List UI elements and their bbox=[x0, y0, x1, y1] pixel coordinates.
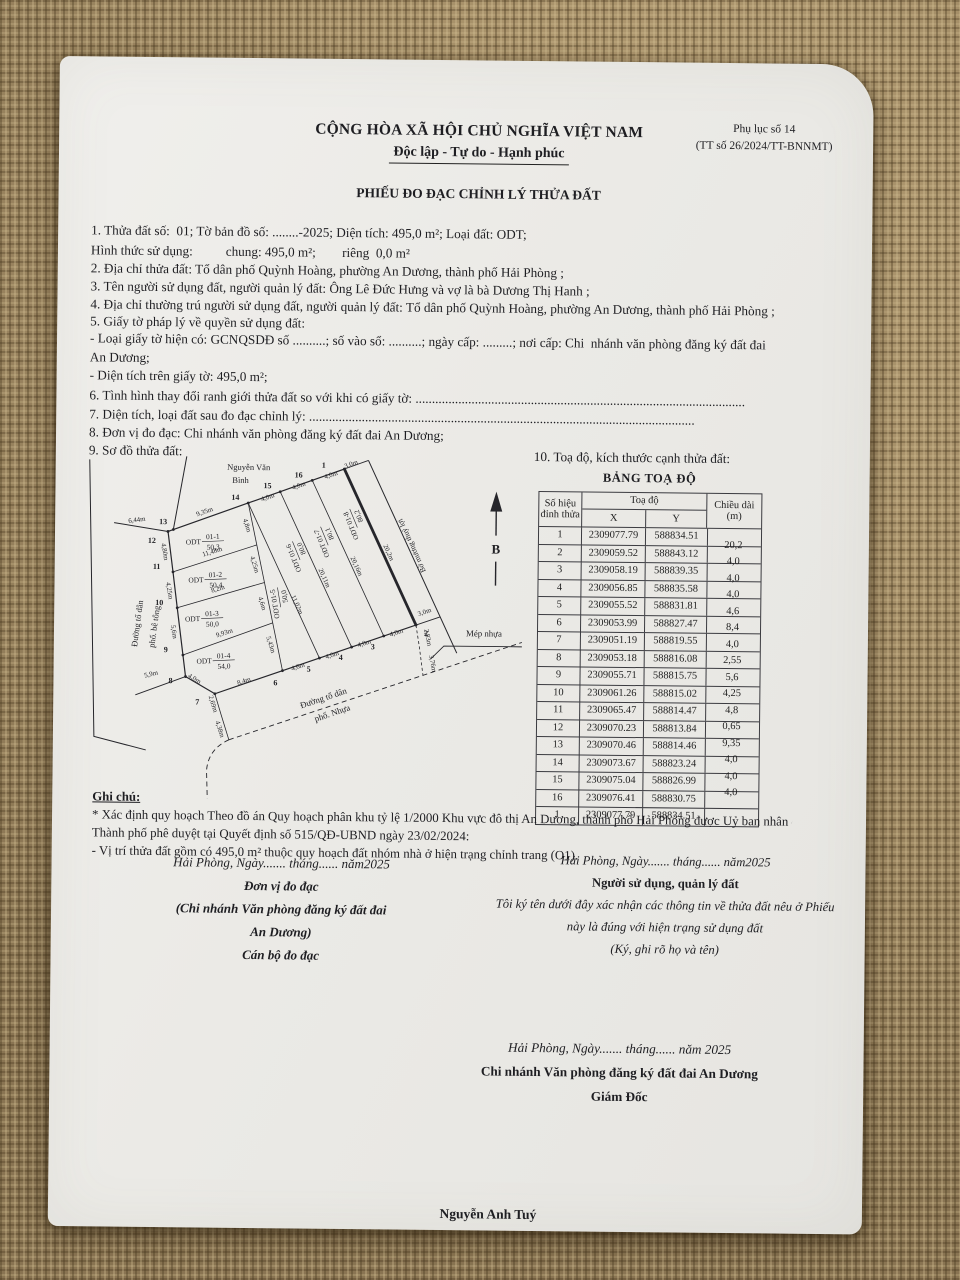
table-cell: 8 bbox=[538, 650, 581, 667]
length-value: 4,25 bbox=[704, 688, 759, 701]
sign-left-person: Cán bộ đo đạc bbox=[90, 941, 470, 968]
table-cell: 15 bbox=[536, 772, 579, 789]
table-title: BẢNG TOẠ ĐỘ bbox=[539, 470, 761, 487]
parcel-text: ODT bbox=[196, 656, 212, 666]
edge-length-label: 3,76m bbox=[427, 655, 437, 674]
edge-length-label: 8,4m bbox=[236, 676, 252, 687]
parcel-text: 01-4 bbox=[217, 651, 231, 661]
table-cell: 588835.58 bbox=[645, 581, 707, 598]
length-value: 4,0 bbox=[704, 754, 759, 767]
vertex-label: 6 bbox=[273, 678, 277, 687]
table-body: 12309077.79588834.5122309059.52588843.12… bbox=[536, 527, 761, 826]
table-cell: 2309073.67 bbox=[580, 755, 644, 772]
parcel-text: ODT bbox=[188, 575, 204, 585]
vertex-label: 14 bbox=[231, 493, 239, 502]
edge-length-label: 4,6m bbox=[290, 661, 306, 672]
table-cell: 588815.02 bbox=[644, 686, 706, 703]
vertex-point bbox=[279, 490, 282, 493]
parcel-text: 01-2 bbox=[208, 570, 222, 580]
table-cell: 588814.46 bbox=[644, 738, 706, 755]
vertex-point bbox=[247, 502, 250, 505]
parcel-label: ODT01-150,3 bbox=[185, 532, 224, 553]
item-10: 10. Toạ độ, kích thước cạnh thửa đất: bbox=[534, 449, 730, 467]
edge-length-label: 4,0m bbox=[389, 627, 405, 638]
vertex-label: 11 bbox=[153, 562, 161, 571]
table-cell: 2 bbox=[539, 545, 582, 562]
length-column: 20,24,04,04,04,68,44,02,555,64,254,80,65… bbox=[703, 529, 761, 826]
edge-length-label: 11,02m bbox=[289, 594, 304, 616]
parcel-sketch: 123456789101112131415169,35m4,0m4,0m4,0m… bbox=[80, 451, 524, 804]
approval-block: Hải Phòng, Ngày....... tháng...... năm 2… bbox=[299, 1034, 940, 1113]
signer-name: Nguyễn Anh Tuý bbox=[168, 1203, 808, 1226]
vertex-label: 8 bbox=[168, 676, 172, 685]
map-text: Mép nhựa bbox=[466, 628, 502, 638]
table-cell: 10 bbox=[537, 685, 580, 702]
table-cell: 588819.55 bbox=[645, 633, 707, 650]
length-value: 4,0 bbox=[705, 638, 760, 651]
vertex-label: 13 bbox=[159, 517, 167, 526]
table-cell: 12 bbox=[537, 720, 580, 737]
strip-parcel-label: ODT 01-880,2 bbox=[341, 505, 370, 541]
vertex-point bbox=[382, 635, 385, 638]
table-cell: 1 bbox=[539, 527, 582, 544]
length-value: 8,4 bbox=[705, 622, 760, 635]
strip-parcel-label: ODT 01-680,0 bbox=[284, 538, 313, 574]
table-cell: 2309056.85 bbox=[581, 580, 645, 597]
length-value: 9,35 bbox=[704, 737, 759, 750]
map-text: Đường tổ dân bbox=[129, 599, 145, 648]
col-vertex-2: đỉnh thửa bbox=[539, 509, 581, 521]
appendix-ref: Phụ lục số 14 (TT số 26/2024/TT-BNNMT) bbox=[655, 120, 873, 156]
document-paper: CỘNG HÒA XÃ HỘI CHỦ NGHĨA VIỆT NAM Độc l… bbox=[48, 56, 874, 1234]
table-cell: 588823.24 bbox=[644, 756, 706, 773]
vertex-label: 16 bbox=[295, 470, 303, 479]
vertex-point bbox=[172, 570, 175, 573]
motto: Độc lập - Tự do - Hạnh phúc bbox=[389, 142, 568, 165]
sign-block-surveyor: Hải Phòng, Ngày....... tháng...... năm20… bbox=[90, 849, 471, 968]
edge-length-label: 2,69m bbox=[207, 695, 219, 714]
parcel-text: 50,3 bbox=[207, 542, 221, 552]
table-cell: 2309055.52 bbox=[581, 597, 645, 614]
length-value: 4,0 bbox=[703, 770, 758, 783]
vertex-point bbox=[318, 657, 321, 660]
edge-length-label: 3,0m bbox=[344, 459, 360, 470]
col-coord: Toạ độ bbox=[582, 492, 706, 510]
vertex-point bbox=[350, 646, 353, 649]
table-cell: 6 bbox=[538, 615, 581, 632]
length-value: 2,55 bbox=[705, 655, 760, 668]
coordinate-table: Số hiệu đỉnh thửa Toạ độ X Y Chiều dài (… bbox=[535, 491, 762, 827]
map-text: Nguyễn Văn bbox=[227, 462, 271, 472]
parcel-text: 01-1 bbox=[206, 532, 220, 542]
edge-length-label: 5,9m bbox=[144, 669, 160, 679]
sign-right-sign: (Ký, ghi rõ họ và tên) bbox=[487, 937, 843, 963]
edge-length-label: 3,0m bbox=[417, 607, 433, 618]
parcel-text: 50,0 bbox=[206, 619, 220, 629]
edge-length-label: 4,8m bbox=[241, 518, 252, 534]
edge-length-label: 4,25m bbox=[164, 582, 174, 601]
edge-length-label: 6,44m bbox=[128, 516, 147, 525]
table-cell: 3 bbox=[539, 562, 582, 579]
table-cell: 2309058.19 bbox=[582, 562, 646, 579]
length-value: 20,2 bbox=[706, 539, 761, 552]
table-cell: 2309051.19 bbox=[581, 632, 645, 649]
map-text: phố. bê tông bbox=[146, 604, 162, 648]
table-cell: 13 bbox=[537, 737, 580, 754]
sign-right-note1: Tôi ký tên dưới đây xác nhận các thông t… bbox=[487, 893, 843, 919]
table-cell: 588843.12 bbox=[646, 546, 708, 563]
parcel-text: 54,0 bbox=[217, 661, 231, 671]
length-value: 4,0 bbox=[705, 589, 760, 602]
table-cell: 4 bbox=[538, 580, 581, 597]
col-x: X bbox=[582, 509, 646, 527]
sign-block-user: Hải Phòng, Ngày....... tháng...... năm20… bbox=[487, 849, 844, 963]
edge-length-label: 5,6m bbox=[169, 625, 178, 640]
edge-length-label: 20,16m bbox=[349, 556, 364, 578]
table-cell: 588826.99 bbox=[643, 773, 705, 790]
strip-parcel-label: ODT 01-780,1 bbox=[312, 523, 341, 559]
vertex-label: 5 bbox=[307, 665, 311, 674]
vertex-label: 4 bbox=[339, 653, 343, 662]
vertex-label: 7 bbox=[195, 697, 199, 706]
vertex-label: 1 bbox=[322, 461, 326, 470]
map-text: phố. Nhựa bbox=[313, 702, 351, 723]
table-cell: 588839.35 bbox=[646, 563, 708, 580]
parcel-text: 01-3 bbox=[205, 609, 219, 619]
edge-length-label: 4,0m bbox=[291, 480, 307, 491]
edge-length-label: 4,80m bbox=[159, 543, 169, 562]
table-cell: 588827.47 bbox=[645, 616, 707, 633]
table-cell: 2309070.23 bbox=[580, 720, 644, 737]
vertex-label: 9 bbox=[164, 645, 168, 654]
length-value: 4,8 bbox=[704, 704, 759, 717]
table-header: Số hiệu đỉnh thửa Toạ độ X Y Chiều dài (… bbox=[539, 492, 761, 529]
table-cell: 14 bbox=[537, 755, 580, 772]
length-value: 4,0 bbox=[706, 556, 761, 569]
col-y: Y bbox=[646, 510, 706, 528]
length-value: 4,0 bbox=[706, 572, 761, 585]
edge-length-label: 4,25m bbox=[248, 555, 260, 574]
table-cell: 588834.51 bbox=[646, 528, 708, 545]
vertex-label: 12 bbox=[148, 536, 156, 545]
item-1: 1. Thửa đất số: 01; Tờ bản đồ số: ......… bbox=[91, 222, 779, 245]
table-cell: 588815.75 bbox=[644, 668, 706, 685]
appendix-line2: (TT số 26/2024/TT-BNNMT) bbox=[655, 137, 873, 156]
vertex-point bbox=[182, 654, 185, 657]
length-value: 5,6 bbox=[704, 671, 759, 684]
parcel-label: ODT01-350,0 bbox=[185, 609, 224, 630]
col-length-2: (m) bbox=[707, 511, 761, 523]
vertex-label: 15 bbox=[263, 481, 271, 490]
map-text: Bình bbox=[232, 475, 249, 485]
parcel-text: ODT bbox=[185, 614, 201, 624]
parcel-label: ODT01-250,4 bbox=[188, 570, 227, 591]
map-text: Bờ mương thuỷ lợi bbox=[396, 517, 428, 574]
table-cell: 588831.81 bbox=[645, 598, 707, 615]
table-cell: 11 bbox=[537, 702, 580, 719]
table-cell: 2309075.04 bbox=[579, 772, 643, 789]
length-value: 0,65 bbox=[704, 721, 759, 734]
parcel-text: ODT bbox=[186, 537, 202, 547]
edge-length-label: 20,11m bbox=[317, 567, 332, 589]
parcel-text: 50,4 bbox=[209, 580, 223, 590]
table-cell: 2309070.46 bbox=[580, 737, 644, 754]
vertex-point bbox=[281, 669, 284, 672]
table-cell: 2309077.79 bbox=[582, 527, 646, 544]
table-cell: 2309053.18 bbox=[581, 650, 645, 667]
table-cell: 9 bbox=[537, 667, 580, 684]
table-cell: 588814.47 bbox=[644, 703, 706, 720]
north-label: B bbox=[491, 542, 500, 557]
table-cell: 7 bbox=[538, 632, 581, 649]
edge-length-label: 2,83m bbox=[422, 628, 432, 647]
table-cell: 2309061.26 bbox=[580, 685, 644, 702]
table-cell: 2309053.99 bbox=[581, 615, 645, 632]
edge-length-label: 4,6m bbox=[256, 596, 267, 612]
table-cell: 5 bbox=[538, 597, 581, 614]
edge-length-label: 4,0m bbox=[187, 673, 203, 686]
table-cell: 2309065.47 bbox=[580, 702, 644, 719]
col-vertex-1: Số hiệu bbox=[539, 498, 581, 510]
edge-length-label: 5,43m bbox=[264, 636, 276, 655]
form-title: PHIẾU ĐO ĐẠC CHỈNH LÝ THỬA ĐẤT bbox=[199, 183, 759, 205]
vertex-point bbox=[311, 479, 314, 482]
table-cell: 2309055.71 bbox=[580, 667, 644, 684]
vertex-point bbox=[176, 606, 179, 609]
table-cell: 588813.84 bbox=[644, 721, 706, 738]
length-value: 4,6 bbox=[705, 605, 760, 618]
table-cell: 588816.08 bbox=[645, 651, 707, 668]
north-arrow-icon bbox=[490, 492, 502, 512]
parcel-label: ODT01-454,0 bbox=[196, 651, 235, 672]
table-cell: 2309059.52 bbox=[582, 545, 646, 562]
col-length-1: Chiều dài bbox=[707, 499, 761, 511]
